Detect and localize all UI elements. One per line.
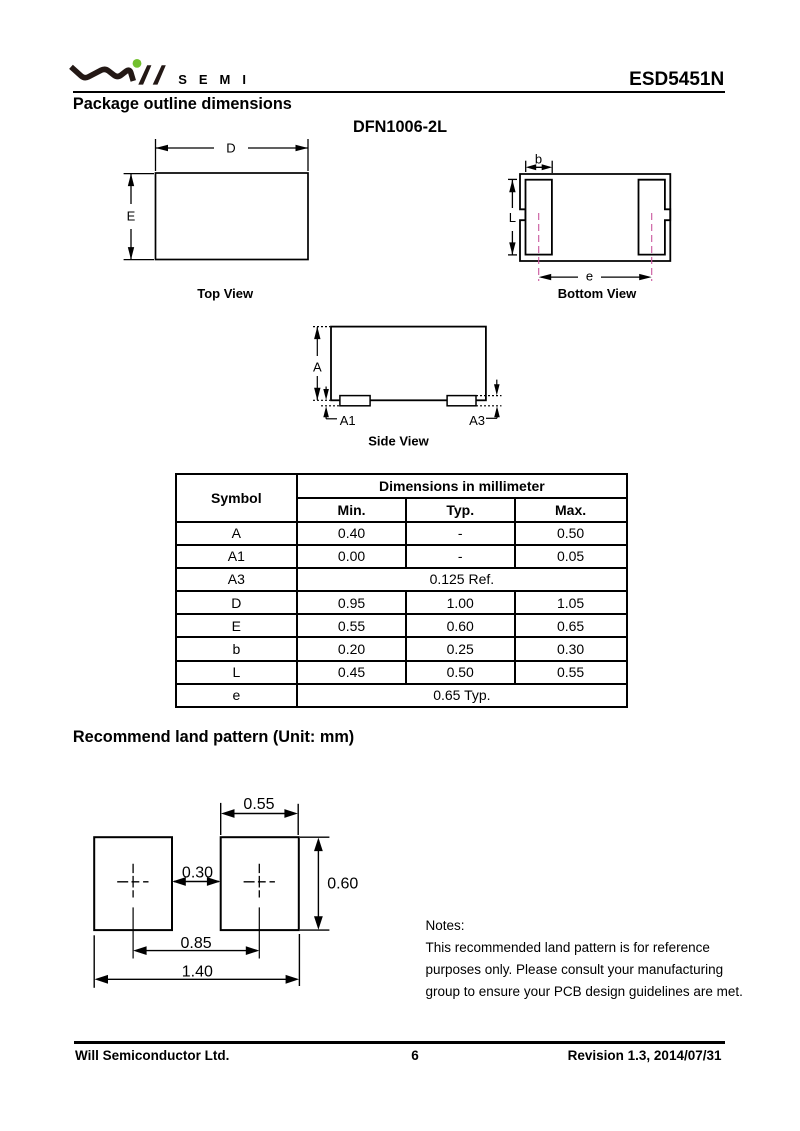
svg-text:A: A bbox=[313, 360, 322, 375]
svg-text:0.55: 0.55 bbox=[243, 796, 274, 813]
svg-text:SEMI: SEMI bbox=[178, 72, 258, 87]
svg-text:Bottom View: Bottom View bbox=[558, 286, 637, 301]
svg-text:0.60: 0.60 bbox=[327, 876, 358, 893]
svg-text:0.30: 0.30 bbox=[182, 865, 213, 882]
svg-text:0.85: 0.85 bbox=[181, 935, 212, 952]
svg-text:A1: A1 bbox=[340, 413, 356, 428]
svg-text:A3: A3 bbox=[469, 413, 485, 428]
svg-text:E: E bbox=[127, 209, 136, 224]
svg-text:Top View: Top View bbox=[197, 286, 254, 301]
svg-text:Side View: Side View bbox=[368, 434, 429, 449]
svg-text:1.40: 1.40 bbox=[182, 964, 213, 981]
svg-text:L: L bbox=[509, 210, 516, 225]
svg-text:e: e bbox=[586, 269, 593, 284]
svg-text:b: b bbox=[535, 151, 542, 166]
svg-text:D: D bbox=[226, 141, 235, 156]
